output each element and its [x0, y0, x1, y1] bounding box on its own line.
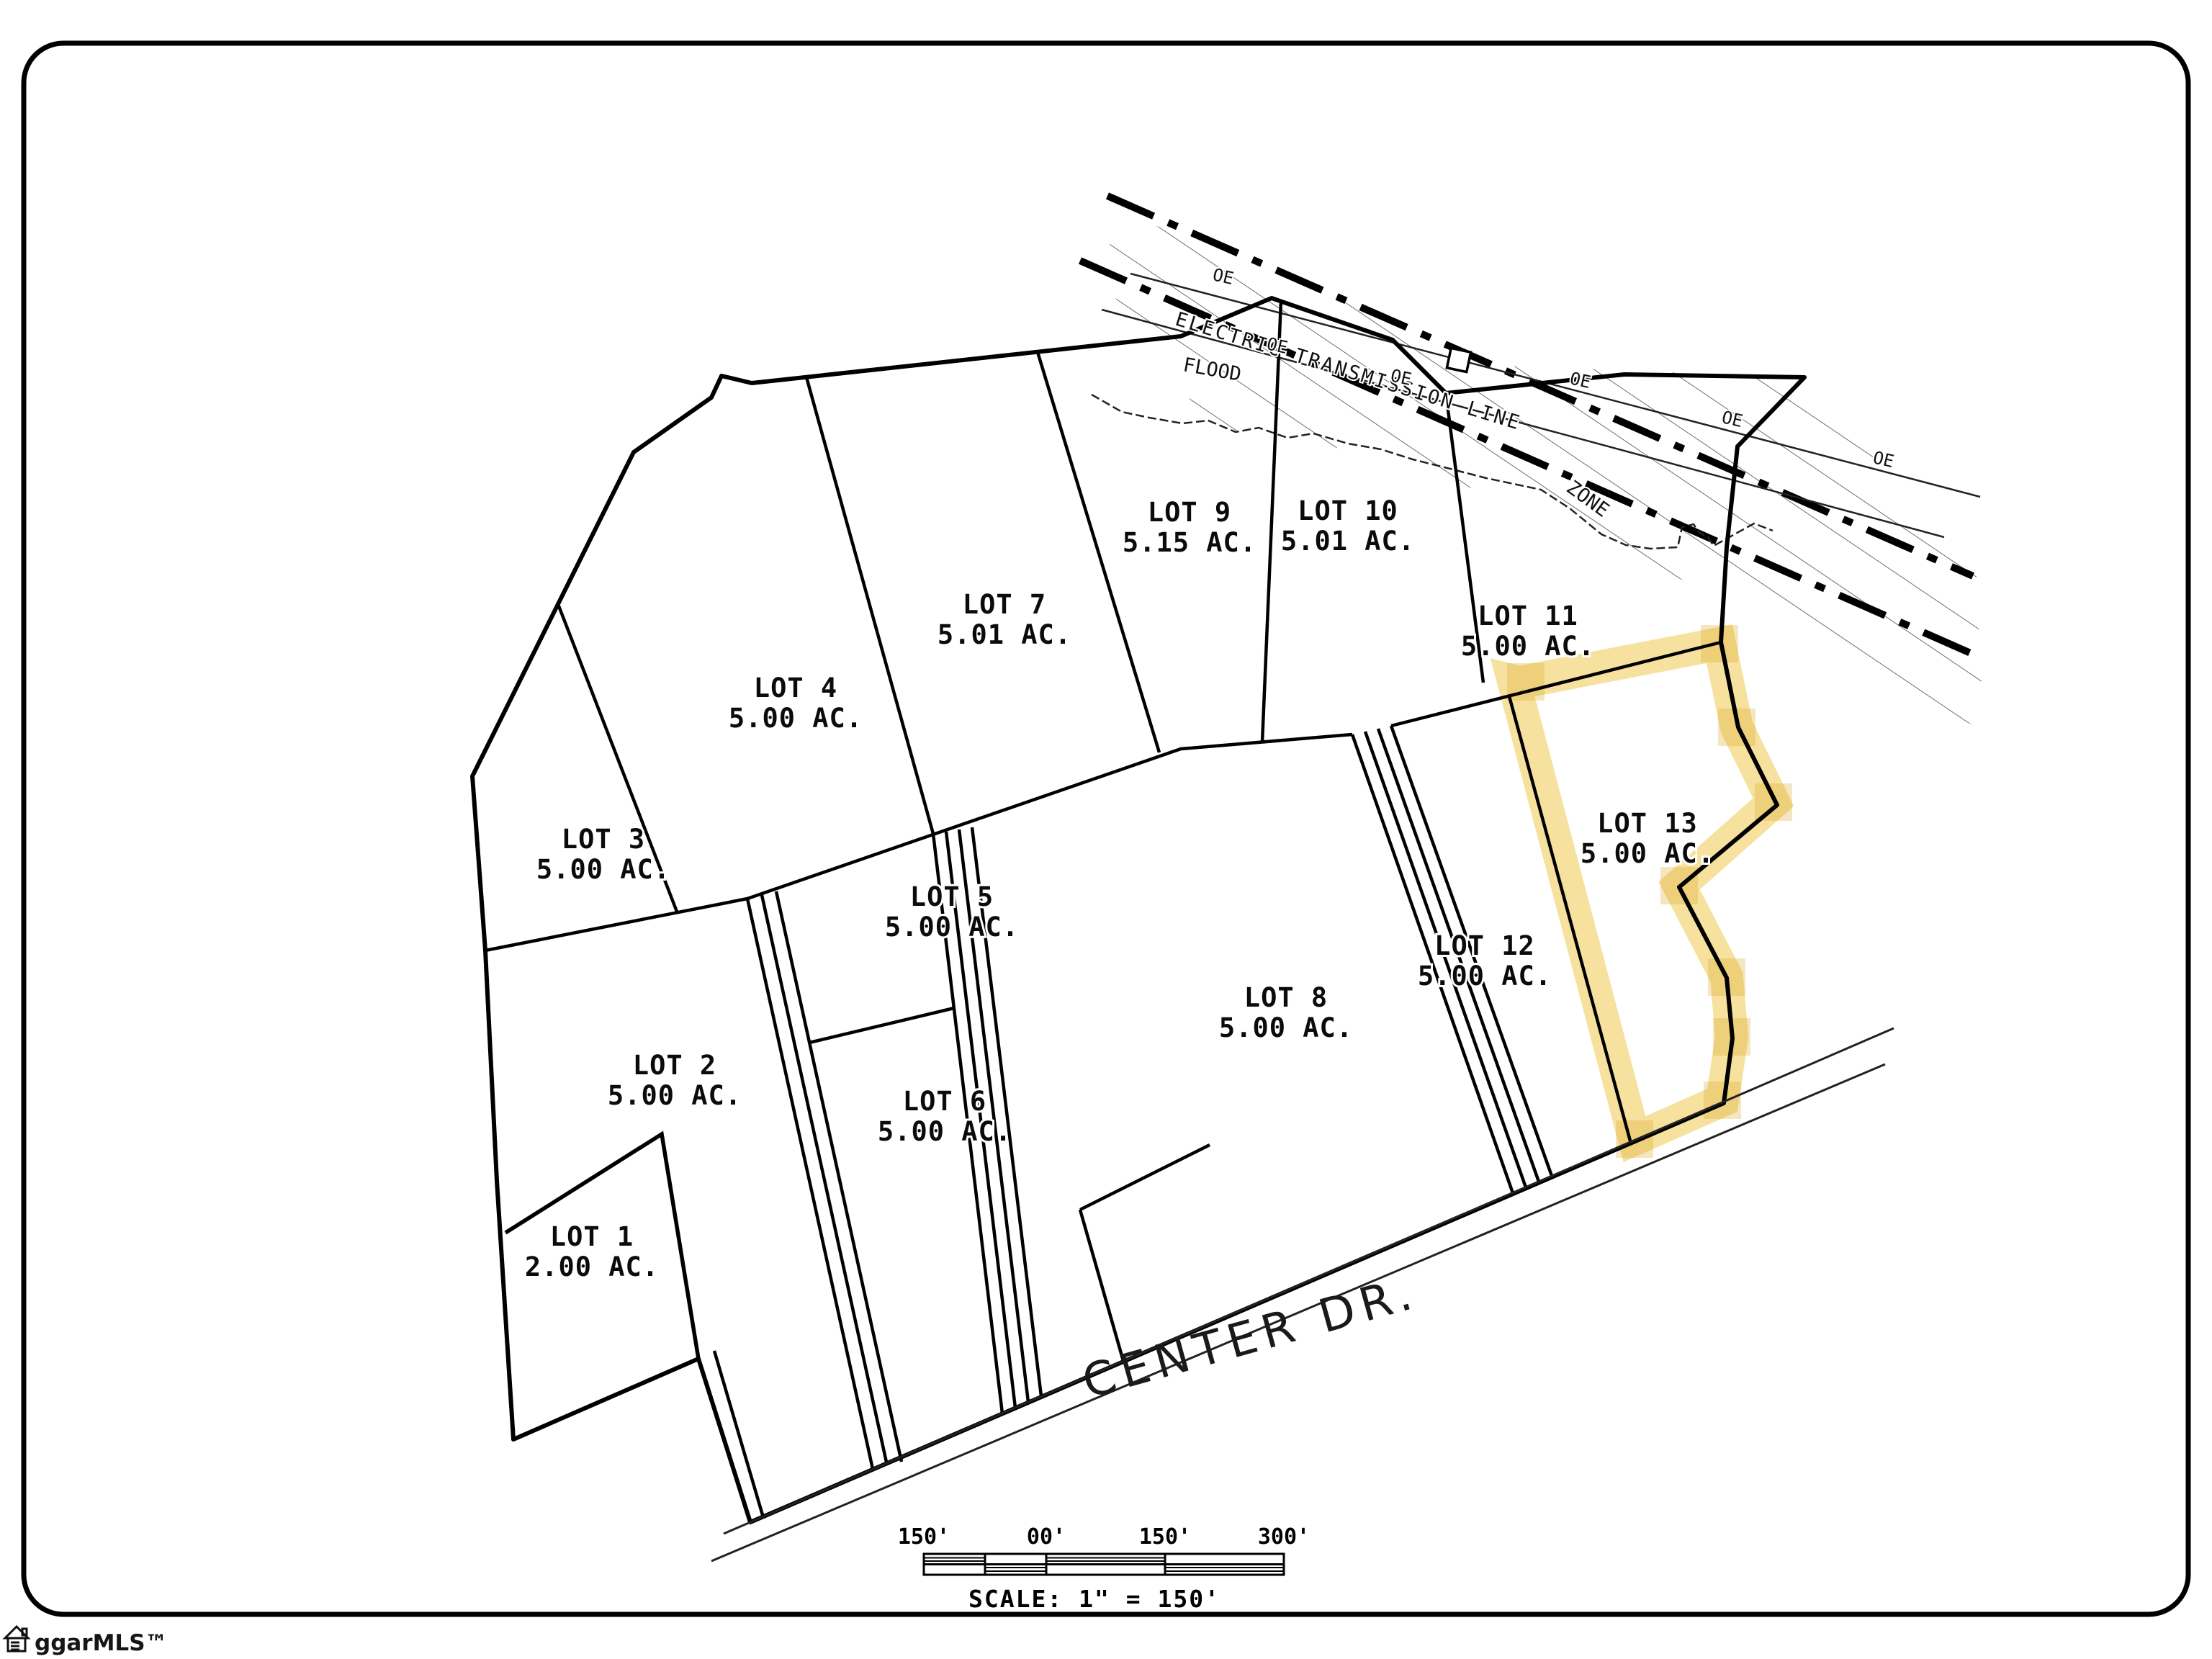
lot-4-label: LOT 4	[754, 673, 837, 703]
lot-2-label: LOT 2	[633, 1050, 716, 1081]
lot-5-acreage: 5.00 AC.	[885, 912, 1019, 943]
plat-map-page: LOT 1 2.00 AC. LOT 2 5.00 AC. LOT 3 5.00…	[0, 0, 2212, 1659]
lot-12-label: LOT 12	[1434, 930, 1535, 961]
lot-6-acreage: 5.00 AC.	[878, 1116, 1012, 1147]
lot-8-label: LOT 8	[1244, 982, 1328, 1013]
lot-7-acreage: 5.01 AC.	[938, 619, 1071, 650]
lot-labels: LOT 1 2.00 AC. LOT 2 5.00 AC. LOT 3 5.00…	[525, 495, 1714, 1282]
lot-11-label: LOT 11	[1478, 601, 1578, 631]
lot-13-label: LOT 13	[1597, 808, 1698, 839]
lot-8-acreage: 5.00 AC.	[1219, 1012, 1353, 1043]
lot-9-label: LOT 9	[1148, 497, 1231, 528]
lot-11-acreage: 5.00 AC.	[1461, 631, 1595, 662]
scale-tick-00: 00'	[1027, 1524, 1066, 1550]
lot13-highlight	[1507, 625, 1792, 1158]
lot-7-label: LOT 7	[963, 589, 1046, 620]
lot-10-acreage: 5.01 AC.	[1281, 526, 1415, 557]
house-icon	[5, 1627, 28, 1651]
lot-1-label: LOT 1	[550, 1221, 634, 1252]
lot-6-label: LOT 6	[903, 1086, 986, 1117]
scale-tick-150-left: 150'	[898, 1524, 950, 1550]
scale-bar: 150' 00' 150' 300' SCALE: 1" = 150'	[898, 1524, 1310, 1613]
scale-caption: SCALE: 1" = 150'	[968, 1585, 1220, 1613]
lot-10-label: LOT 10	[1298, 495, 1398, 526]
lot-4-acreage: 5.00 AC.	[729, 703, 863, 734]
lot-12-acreage: 5.00 AC.	[1418, 961, 1552, 992]
lot-3-acreage: 5.00 AC.	[536, 854, 670, 885]
scale-tick-300: 300'	[1258, 1524, 1310, 1550]
lot-1-acreage: 2.00 AC.	[525, 1251, 659, 1282]
watermark-text: ggarMLS™	[35, 1630, 168, 1656]
lot-2-acreage: 5.00 AC.	[608, 1080, 742, 1111]
lot-13-acreage: 5.00 AC.	[1581, 838, 1714, 869]
watermark: ggarMLS™	[5, 1627, 168, 1656]
transmission-tower-symbol	[1447, 348, 1470, 372]
lot-9-acreage: 5.15 AC.	[1123, 527, 1256, 558]
lot-3-label: LOT 3	[562, 824, 645, 855]
scale-tick-150-right: 150'	[1139, 1524, 1191, 1550]
plat-map-svg: LOT 1 2.00 AC. LOT 2 5.00 AC. LOT 3 5.00…	[0, 0, 2212, 1659]
road-name-label: CENTER DR.	[1077, 1266, 1424, 1409]
lot-5-label: LOT 5	[910, 881, 994, 912]
